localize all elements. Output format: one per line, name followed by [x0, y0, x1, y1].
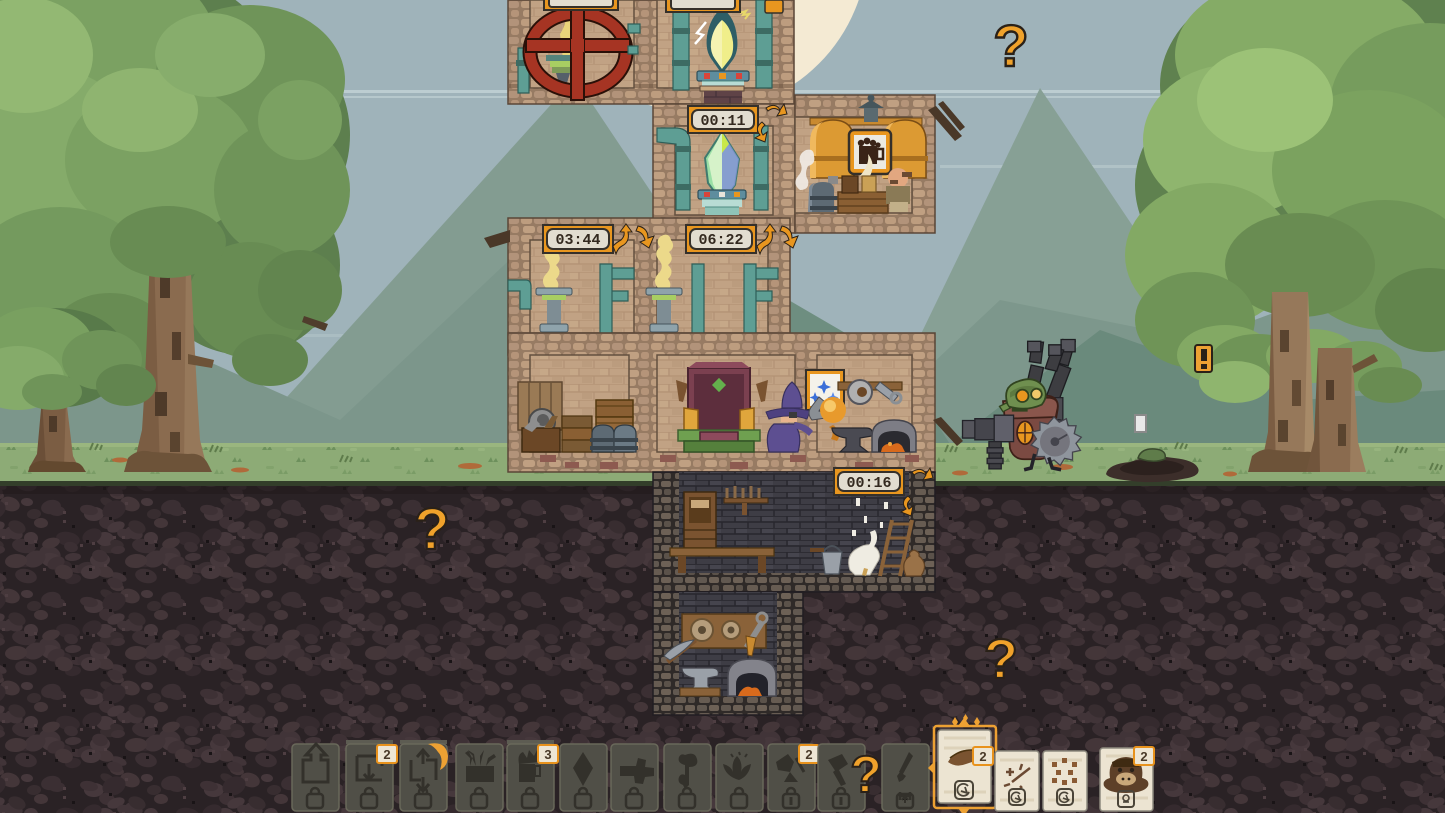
svg-text:2: 2	[383, 747, 390, 762]
svg-text:?: ?	[414, 497, 449, 562]
svg-text:3: 3	[544, 747, 551, 762]
svg-text:00:11: 00:11	[700, 113, 745, 130]
svg-text:06:22: 06:22	[698, 232, 743, 249]
svg-text:?: ?	[993, 14, 1028, 79]
svg-text:00:16: 00:16	[846, 475, 891, 492]
svg-text:2: 2	[979, 749, 986, 764]
svg-text:2: 2	[1140, 749, 1147, 764]
svg-text:2: 2	[805, 747, 812, 762]
svg-text:03:44: 03:44	[555, 232, 600, 249]
svg-text:?: ?	[850, 746, 882, 804]
svg-text:?: ?	[984, 627, 1018, 690]
